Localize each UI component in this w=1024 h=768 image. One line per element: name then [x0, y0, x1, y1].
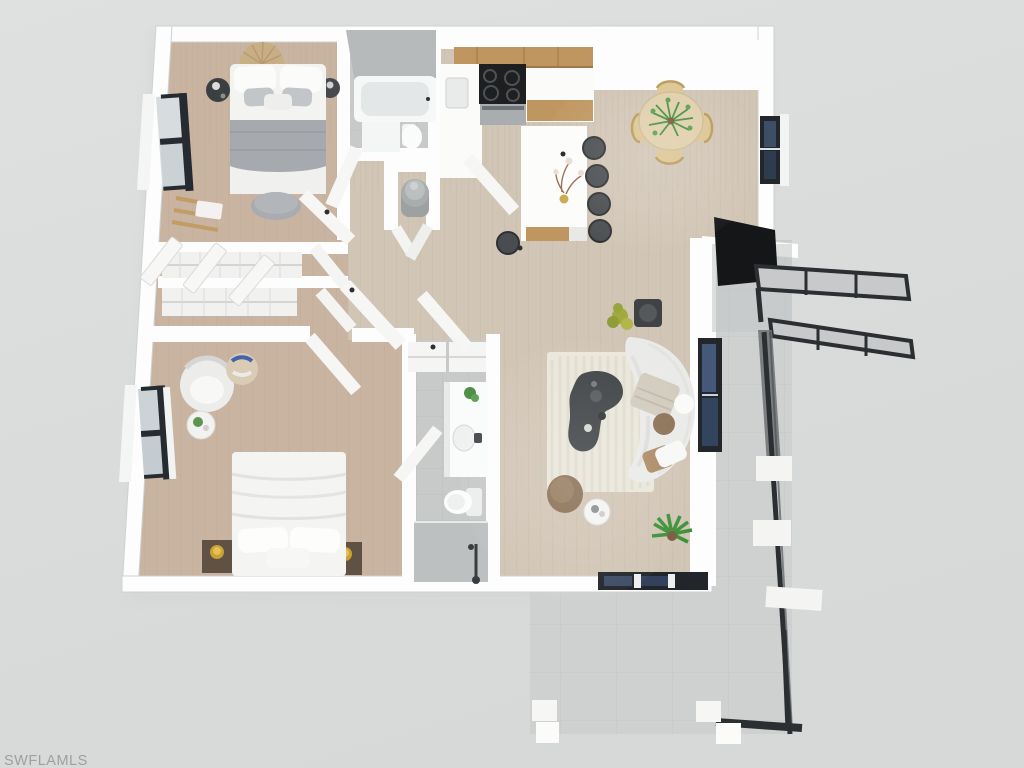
svg-text:SWFLAMLS: SWFLAMLS: [4, 753, 88, 768]
